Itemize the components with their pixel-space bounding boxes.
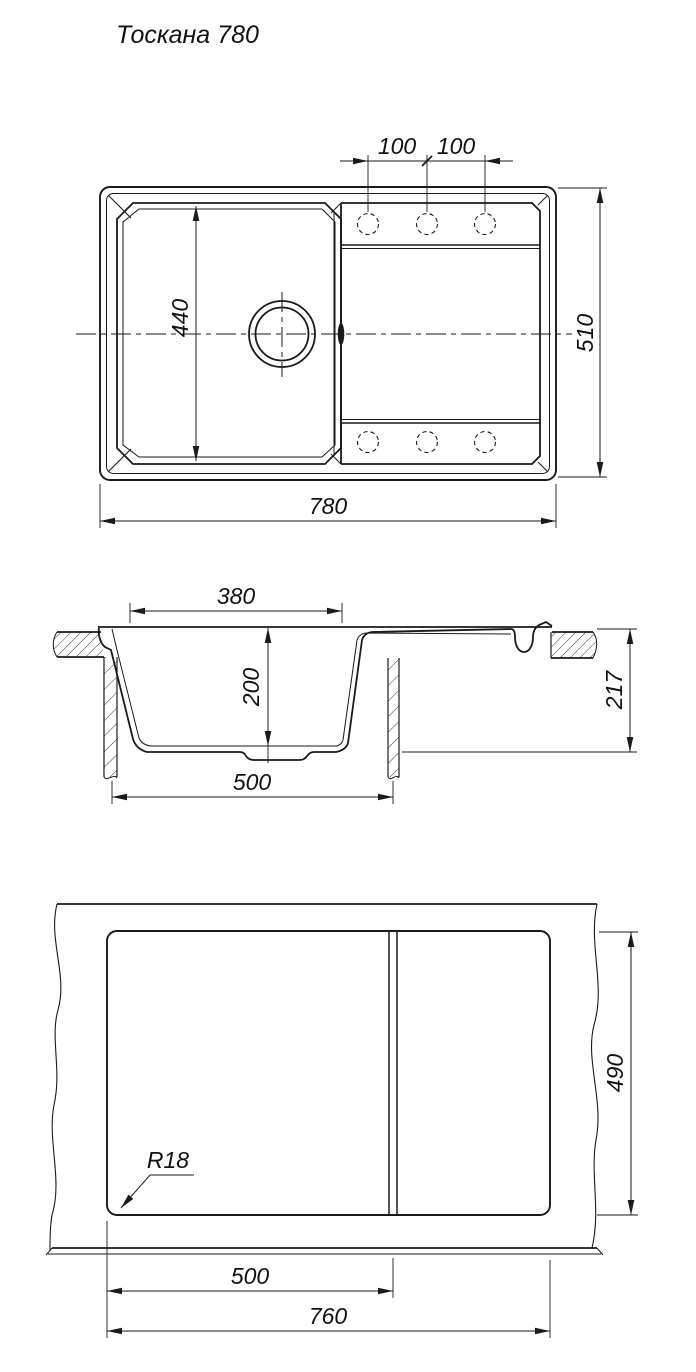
dim-label-corner-radius: R18 [147,1147,189,1173]
cabinet-wall-left [104,657,117,779]
drawing-title: Тоскана 780 [116,21,259,49]
dim-label-bowl-bottom-width: 500 [233,769,272,795]
drawing-sheet: Тоскана 780 [0,0,696,1372]
dim-label-hole-pitch-right: 100 [437,133,476,159]
dim-label-overall-height: 217 [601,670,627,711]
dim-label-bowl-section-width: 500 [231,1263,270,1289]
dim-label-bowl-length: 440 [167,299,193,338]
dim-label-bowl-depth: 200 [238,668,264,708]
dim-label-overall-length: 780 [309,493,348,519]
dim-label-overall-depth: 510 [572,314,598,353]
countertop-right [551,632,597,658]
dim-label-bowl-top-width: 380 [217,583,256,609]
dim-label-cutout-height: 490 [602,1054,628,1093]
cabinet-wall-right [388,658,399,779]
dim-label-cutout-width: 760 [309,1303,348,1329]
dim-label-hole-pitch-left: 100 [378,133,417,159]
sink-technical-drawing: Тоскана 780 [0,0,696,1372]
countertop-left [53,632,104,657]
